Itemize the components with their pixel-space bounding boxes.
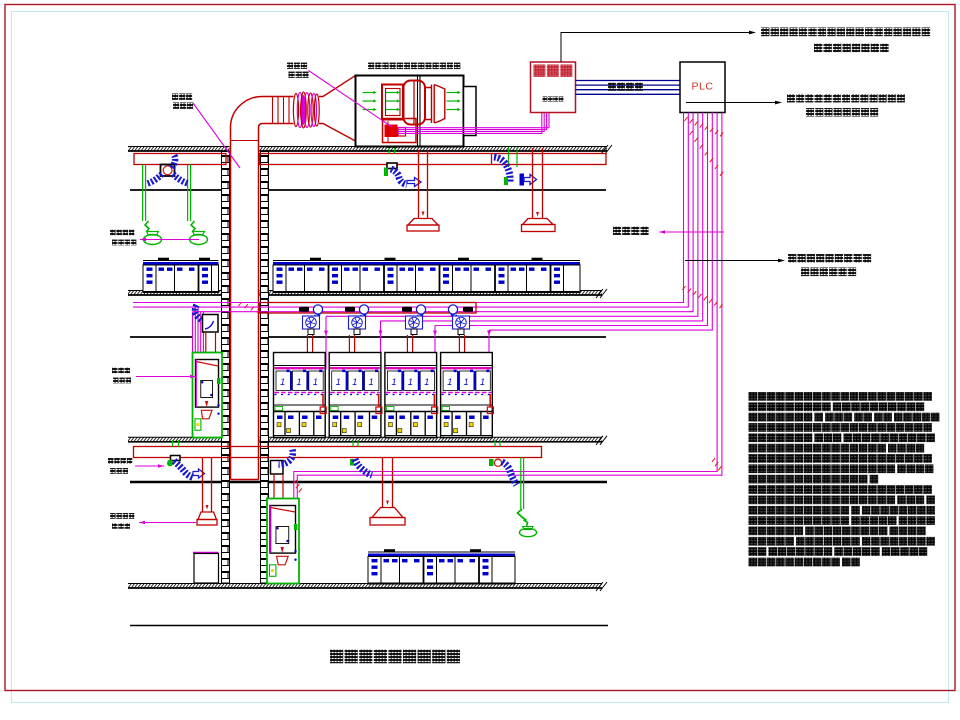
svg-text:1: 1 — [369, 377, 374, 387]
svg-text:1: 1 — [313, 377, 318, 387]
svg-text:1: 1 — [447, 377, 452, 387]
svg-text:1: 1 — [480, 377, 485, 387]
svg-text:1: 1 — [296, 377, 301, 387]
svg-text:1: 1 — [336, 377, 341, 387]
svg-text:PLC: PLC — [692, 81, 714, 93]
svg-text:1: 1 — [464, 377, 469, 387]
svg-text:1: 1 — [424, 377, 429, 387]
svg-text:1: 1 — [408, 377, 413, 387]
svg-text:1: 1 — [352, 377, 357, 387]
svg-text:1: 1 — [280, 377, 285, 387]
svg-text:1: 1 — [391, 377, 396, 387]
